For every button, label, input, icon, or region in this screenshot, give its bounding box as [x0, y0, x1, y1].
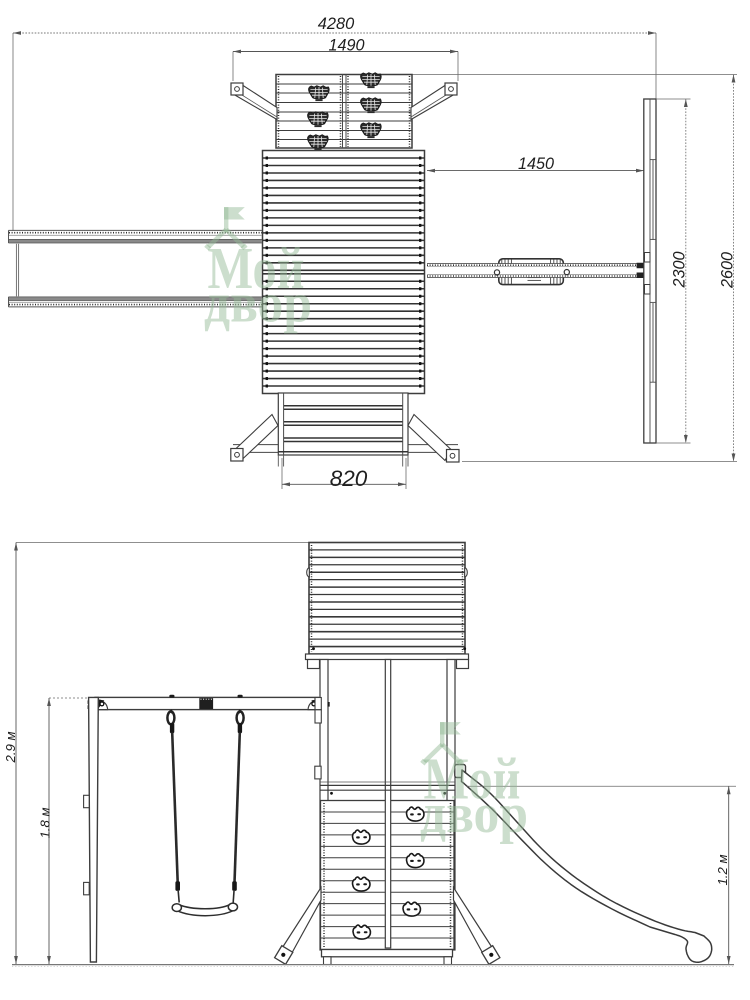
- svg-text:2600: 2600: [719, 252, 737, 289]
- svg-text:1450: 1450: [518, 155, 554, 173]
- svg-text:2300: 2300: [671, 251, 689, 288]
- svg-text:1490: 1490: [328, 36, 364, 54]
- svg-text:двор: двор: [420, 783, 528, 845]
- svg-text:1.2 м: 1.2 м: [715, 854, 730, 885]
- svg-text:4280: 4280: [318, 15, 354, 33]
- svg-text:2.9 м: 2.9 м: [3, 731, 18, 763]
- svg-text:двор: двор: [204, 273, 312, 335]
- svg-text:1.8 м: 1.8 м: [38, 807, 53, 838]
- svg-text:820: 820: [330, 466, 368, 491]
